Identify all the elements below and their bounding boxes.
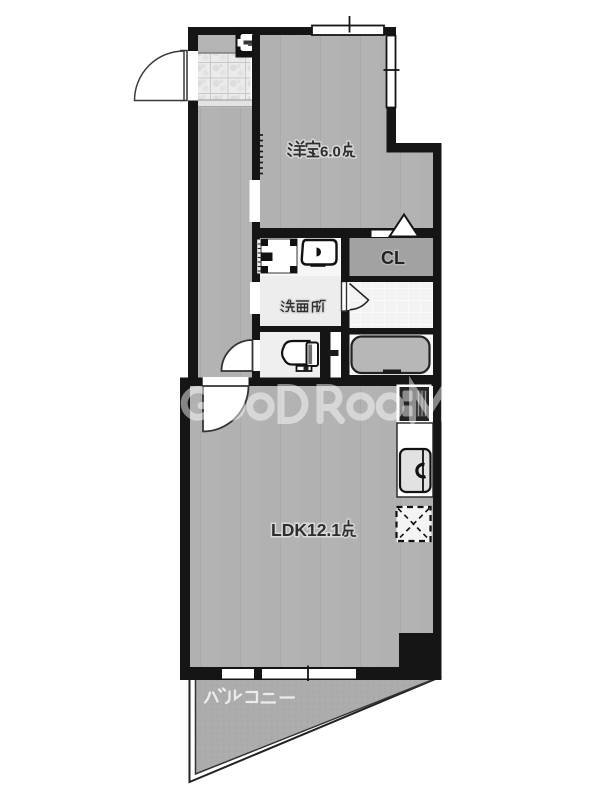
- svg-text:LDK12.1: LDK12.1: [271, 520, 341, 540]
- svg-text:6.0: 6.0: [320, 144, 341, 161]
- svg-text:CL: CL: [381, 248, 405, 268]
